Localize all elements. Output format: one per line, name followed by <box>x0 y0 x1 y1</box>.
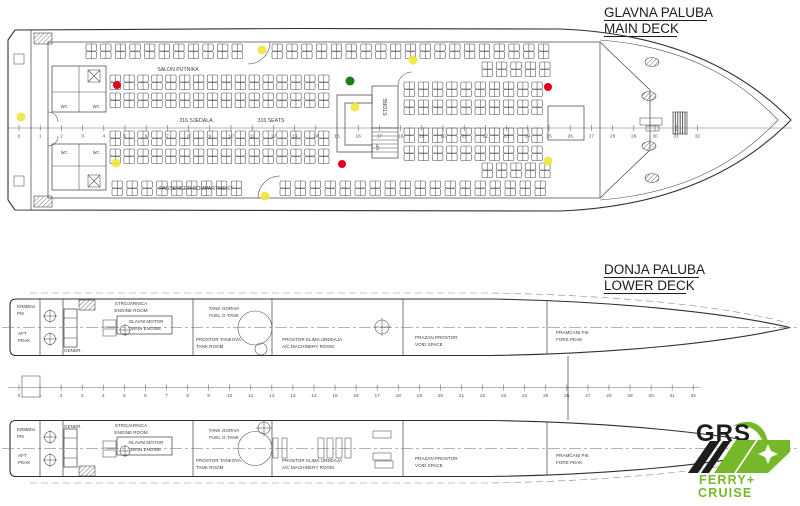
ac-room-label-en: A/C MACHINERY ROOM <box>282 344 334 349</box>
fuel-tank-label-hr: TANK GORIVA <box>209 428 241 433</box>
seat-unit <box>221 149 232 164</box>
bow-equipment <box>640 58 687 183</box>
seat-unit <box>496 163 507 178</box>
seat-unit <box>385 181 396 196</box>
seat-unit <box>277 131 288 146</box>
bollard <box>14 176 24 186</box>
seat-unit <box>305 75 316 90</box>
frame-number: 25 <box>546 134 552 140</box>
frame-number: 5 <box>123 393 126 399</box>
seat-unit <box>432 100 443 115</box>
seat-unit <box>340 181 351 196</box>
seat-unit <box>445 181 456 196</box>
seat-unit <box>221 75 232 90</box>
seat-unit <box>475 82 486 97</box>
frame-number: 26 <box>568 134 574 140</box>
frame-number: 18 <box>398 134 404 140</box>
frame-number: 30 <box>652 134 658 140</box>
void-space-label-en: VOID SPACE <box>415 342 443 347</box>
wc-block-top: WC WC <box>52 66 106 112</box>
store-label: STORE <box>383 98 389 116</box>
lower-deck-frame-scale: 0123456789101112131415161718192021222324… <box>18 385 697 400</box>
seat-unit <box>355 181 366 196</box>
seat-unit <box>505 181 516 196</box>
seat-unit <box>291 93 302 108</box>
seat-unit <box>193 149 204 164</box>
frame-number: 3 <box>81 134 84 140</box>
anchor-windlass <box>673 112 687 134</box>
lower-deck-bottom-half: KRMENI PIK AFT PEAK GENER. STROJARNICA E… <box>2 418 798 479</box>
seat-unit <box>404 82 415 97</box>
frame-number: 6 <box>144 393 147 399</box>
seat-unit <box>193 93 204 108</box>
frame-number: 0 <box>18 393 21 399</box>
seat-unit <box>503 146 514 161</box>
seat-unit <box>319 93 330 108</box>
frame-number: 11 <box>248 393 253 399</box>
seat-unit <box>461 146 472 161</box>
frame-number: 13 <box>290 393 296 399</box>
frame-number: 19 <box>419 134 425 140</box>
seat-unit <box>291 75 302 90</box>
seat-unit <box>482 163 493 178</box>
wc-block-bottom: WC WC <box>52 144 106 190</box>
seat-unit <box>115 44 126 59</box>
seat-unit <box>475 100 486 115</box>
yellow-marker <box>351 103 360 112</box>
seat-unit <box>404 128 415 143</box>
seat-unit <box>418 100 429 115</box>
seat-unit <box>277 93 288 108</box>
frame-number: 23 <box>501 393 507 399</box>
seat-unit <box>144 44 155 59</box>
seat-unit <box>272 44 283 59</box>
seat-unit <box>188 44 199 59</box>
stern-door-arcs <box>48 112 58 146</box>
generator <box>64 309 77 347</box>
frame-number: 29 <box>627 393 633 399</box>
seat-unit <box>249 149 260 164</box>
frame-number: 28 <box>610 134 616 140</box>
yellow-marker <box>409 56 418 65</box>
seat-unit <box>447 146 458 161</box>
seats-count-hr: 316 SJEDALA <box>179 118 213 124</box>
seat-unit <box>280 181 291 196</box>
seat-unit <box>166 93 177 108</box>
ac-room-label-en: A/C MACHINERY ROOM <box>282 465 334 470</box>
main-deck-title-hr: GLAVNA PALUBA <box>604 5 713 20</box>
seat-unit <box>305 149 316 164</box>
engine-room-stairs <box>79 466 95 476</box>
seat-unit <box>124 149 134 164</box>
seating-area <box>86 44 550 196</box>
frame-number: 1 <box>39 393 42 399</box>
seat-unit <box>207 149 218 164</box>
seat-unit <box>130 44 141 59</box>
main-deck-title-en: MAIN DECK <box>604 21 679 36</box>
seat-unit <box>525 62 536 77</box>
seat-unit <box>86 44 97 59</box>
engine-room-label-en: ENGINE ROOM <box>114 430 147 435</box>
seat-unit <box>193 75 204 90</box>
seat-unit <box>127 181 137 196</box>
fore-peak-label-en: FORE PEAK <box>556 460 583 465</box>
logo-line1: FERRY+ <box>699 473 755 487</box>
frame-number: 12 <box>269 393 275 399</box>
tank-room-label-hr: PROSTOR TANKOVA <box>196 337 242 342</box>
ship-deck-plans-svg: GLAVNA PALUBA MAIN DECK WC WC <box>0 0 800 506</box>
logo-line2: CRUISE <box>698 486 752 500</box>
frame-number: 17 <box>377 134 383 140</box>
seat-unit <box>464 44 475 59</box>
seat-unit <box>479 44 490 59</box>
main-deck-plan: GLAVNA PALUBA MAIN DECK WC WC <box>8 5 792 211</box>
ac-room-label-hr: PROSTOR KLIMA UREĐAJA <box>282 458 343 463</box>
frame-number: 14 <box>311 393 317 399</box>
seat-unit <box>174 44 185 59</box>
frame-number: 30 <box>648 393 654 399</box>
staircase <box>372 128 398 158</box>
seat-unit <box>235 131 246 146</box>
seat-unit <box>447 100 458 115</box>
seat-unit <box>461 82 472 97</box>
salon-label: SALON PUTNIKA <box>157 67 199 73</box>
door-arc-store <box>398 72 412 86</box>
engine-room-label-hr: STROJARNICA <box>115 423 148 428</box>
seat-unit <box>138 75 149 90</box>
fuel-tank-label-en: FUEL O.TANK <box>209 313 240 318</box>
seat-unit <box>302 44 313 59</box>
wc-label: WC <box>93 150 100 155</box>
engine-room-stairs <box>79 300 95 310</box>
void-space-label-hr: PRAZAN PROSTOR <box>415 456 458 461</box>
engine-room-equipment <box>43 429 172 476</box>
frame-number: 16 <box>353 393 359 399</box>
seat-unit <box>277 149 288 164</box>
seat-unit <box>221 93 232 108</box>
fuel-tank-label-en: FUEL O.TANK <box>209 435 240 440</box>
frame-number: 1 <box>39 134 42 140</box>
winch <box>646 126 659 131</box>
frame-number: 10 <box>227 393 233 399</box>
seat-unit <box>142 181 153 196</box>
seat-unit <box>415 181 426 196</box>
frame-number: 8 <box>186 393 189 399</box>
seat-unit <box>249 93 260 108</box>
main-deck-frame-scale: 0123456789101112131415161718192021222324… <box>18 125 701 140</box>
frame-number: 32 <box>691 393 697 399</box>
seat-unit <box>509 44 520 59</box>
seat-unit <box>420 44 431 59</box>
passenger-cabin-wall <box>48 42 600 198</box>
frame-number: 9 <box>207 393 210 399</box>
seat-unit <box>159 44 170 59</box>
generator-label: GENER. <box>64 424 82 429</box>
aft-peak-label-en: AFT <box>18 331 27 336</box>
seat-unit <box>217 44 228 59</box>
seat-unit <box>503 82 514 97</box>
seat-unit <box>376 44 387 59</box>
seat-unit <box>518 82 529 97</box>
frame-number: 27 <box>585 393 591 399</box>
seat-unit <box>331 44 342 59</box>
seat-unit <box>404 100 415 115</box>
winch <box>640 118 662 125</box>
engine-room-label-en: ENGINE ROOM <box>114 308 147 313</box>
red-marker <box>338 160 346 168</box>
seat-unit <box>518 100 529 115</box>
seat-unit <box>138 149 149 164</box>
seat-unit <box>404 146 415 161</box>
frame-number: 31 <box>669 393 675 399</box>
seat-unit <box>316 44 327 59</box>
bollard <box>14 54 24 64</box>
seat-unit <box>152 93 163 108</box>
seat-unit <box>461 100 472 115</box>
frame-number: 17 <box>375 393 381 399</box>
frame-number: 20 <box>438 393 444 399</box>
deck-plan-drawing: GLAVNA PALUBA MAIN DECK WC WC <box>0 0 800 506</box>
seat-unit <box>532 82 543 97</box>
seat-unit <box>152 131 163 146</box>
frame-number: 21 <box>462 134 468 140</box>
yellow-marker <box>544 157 553 166</box>
seat-unit <box>152 149 163 164</box>
seat-unit <box>138 93 149 108</box>
wc-label: WC <box>61 104 68 109</box>
aft-peak-label-en: AFT <box>18 453 27 458</box>
frame-number: 7 <box>165 393 168 399</box>
main-engine-label-en: MAIN ENGINE <box>131 326 161 331</box>
frame-number: 24 <box>522 393 528 399</box>
seat-unit <box>180 93 191 108</box>
seat-unit <box>180 149 191 164</box>
main-engine-label-hr: GLAVNI MOTOR <box>129 319 164 324</box>
seat-unit <box>489 100 500 115</box>
seat-unit <box>532 128 543 143</box>
frame-number: 15 <box>332 393 338 399</box>
seat-unit <box>447 128 458 143</box>
seat-unit <box>319 149 330 164</box>
seat-unit <box>460 181 471 196</box>
seat-unit <box>152 75 163 90</box>
seat-unit <box>390 44 401 59</box>
fuel-tank-label-hr: TANK GORIVA <box>209 306 241 311</box>
tank-room-label-hr: PROSTOR TANKOVA <box>196 458 242 463</box>
seat-unit <box>277 75 288 90</box>
seat-unit <box>450 44 461 59</box>
lower-deck-title-en: LOWER DECK <box>604 278 695 293</box>
fore-peak-label-hr: PRAMČANI PIK <box>556 329 590 335</box>
seat-unit <box>263 75 274 90</box>
seat-unit <box>447 82 458 97</box>
seat-unit <box>432 82 443 97</box>
seat-unit <box>310 181 321 196</box>
yellow-marker <box>261 192 270 201</box>
seat-unit <box>231 181 242 196</box>
seat-unit <box>430 181 441 196</box>
up-label: UP <box>375 144 380 150</box>
seat-unit <box>305 93 316 108</box>
seat-unit <box>207 75 218 90</box>
forward-vestibule-wall <box>600 42 650 198</box>
frame-number: 21 <box>459 393 465 399</box>
seat-unit <box>475 181 486 196</box>
fore-peak-label-en: FORE PEAK <box>556 337 583 342</box>
frame-number: 27 <box>589 134 595 140</box>
wc-label: WC <box>93 104 100 109</box>
main-deck-hull-inner-line <box>600 40 778 200</box>
seat-unit <box>503 100 514 115</box>
frame-number: 31 <box>674 134 680 140</box>
seat-unit <box>400 181 411 196</box>
seat-unit <box>235 93 246 108</box>
seat-unit <box>475 146 486 161</box>
rudder-post <box>22 376 40 397</box>
seat-unit <box>525 163 536 178</box>
seat-unit <box>166 149 177 164</box>
seat-unit <box>193 131 204 146</box>
seat-unit <box>232 44 243 59</box>
seat-unit <box>203 44 214 59</box>
frame-number: 26 <box>564 393 570 399</box>
seat-unit <box>110 93 121 108</box>
grs-ferry-cruise-logo: GRS FERRY+ CRUISE <box>688 420 790 500</box>
seat-unit <box>418 82 429 97</box>
seat-unit <box>540 62 551 77</box>
yellow-marker <box>17 113 26 122</box>
seat-unit <box>346 44 357 59</box>
aft-peak-label-hr: KRMENI <box>17 304 35 309</box>
seat-unit <box>520 181 531 196</box>
yellow-marker <box>112 159 121 168</box>
seat-unit <box>418 146 429 161</box>
seat-unit <box>535 181 546 196</box>
seat-unit <box>524 44 535 59</box>
seat-unit <box>532 100 543 115</box>
seat-unit <box>482 62 493 77</box>
seat-unit <box>101 44 112 59</box>
seat-unit <box>370 181 381 196</box>
void-space-label-hr: PRAZAN PROSTOR <box>415 335 458 340</box>
tank-room-label-en: TANK ROOM <box>196 465 224 470</box>
frame-number: 0 <box>18 134 21 140</box>
frame-number: 18 <box>396 393 402 399</box>
seat-unit <box>319 131 330 146</box>
seat-unit <box>124 93 134 108</box>
seat-unit <box>511 163 522 178</box>
seat-unit <box>518 146 529 161</box>
frame-number: 4 <box>102 393 105 399</box>
ac-room-label-hr: PROSTOR KLIMA UREĐAJA <box>282 337 343 342</box>
tank-room-equipment <box>238 420 272 466</box>
engine-room-label-hr: STROJARNICA <box>115 301 148 306</box>
seat-unit <box>494 44 505 59</box>
lower-deck-plan: DONJA PALUBA LOWER DECK <box>2 262 798 483</box>
seat-unit <box>490 181 501 196</box>
seat-unit <box>112 181 123 196</box>
seat-unit <box>532 146 543 161</box>
frame-number: 25 <box>543 393 549 399</box>
seat-unit <box>432 146 443 161</box>
seats-count-en: 316 SEATS <box>258 118 285 124</box>
frame-number: 3 <box>81 393 84 399</box>
seat-unit <box>489 146 500 161</box>
seat-unit <box>325 181 336 196</box>
seat-unit <box>166 75 177 90</box>
seat-unit <box>291 149 302 164</box>
green-marker <box>346 77 355 86</box>
yellow-marker <box>258 46 267 55</box>
void-space-label-en: VOID SPACE <box>415 463 443 468</box>
generator-label: GENER. <box>64 348 82 353</box>
seat-unit <box>110 131 121 146</box>
aft-peak-label-hr: KRMENI <box>17 427 35 432</box>
seat-unit <box>489 82 500 97</box>
main-engine-label-en: MAIN ENGINE <box>131 447 161 452</box>
seat-unit <box>489 128 500 143</box>
marker-dots-main-deck <box>17 46 553 201</box>
fore-peak-label-hr: PRAMČANI PIK <box>556 452 590 458</box>
red-marker <box>113 81 121 89</box>
frame-number: 15 <box>334 134 340 140</box>
seat-unit <box>180 75 191 90</box>
aft-peak-label-en: PEAK <box>18 460 31 465</box>
seat-unit <box>249 75 260 90</box>
frame-number: 29 <box>631 134 637 140</box>
deck-overhang-dashed <box>30 453 788 483</box>
main-engine-label-hr: GLAVNI MOTOR <box>129 440 164 445</box>
aft-peak-label-hr: PIK <box>17 434 25 439</box>
frame-number: 19 <box>417 393 423 399</box>
frame-number: 22 <box>480 393 486 399</box>
seat-unit <box>511 62 522 77</box>
generator <box>64 429 77 467</box>
tank-room-label-en: TANK ROOM <box>196 344 224 349</box>
lower-deck-top-half: KRMENI PIK AFT PEAK STROJARNICA ENGINE R… <box>2 296 798 358</box>
frame-number: 16 <box>356 134 362 140</box>
seat-unit <box>319 75 330 90</box>
stern-stairs <box>34 196 52 207</box>
aft-peak-label-hr: PIK <box>17 311 25 316</box>
forward-hatch <box>548 106 584 140</box>
frame-number: 2 <box>60 134 63 140</box>
lower-deck-title-hr: DONJA PALUBA <box>604 262 705 277</box>
seat-unit <box>207 93 218 108</box>
seat-unit <box>295 181 306 196</box>
seat-unit <box>496 62 507 77</box>
seat-unit <box>263 93 274 108</box>
seat-unit <box>235 149 246 164</box>
frame-number: 28 <box>606 393 612 399</box>
seat-unit <box>235 75 246 90</box>
red-marker <box>544 83 552 91</box>
seat-unit <box>538 44 549 59</box>
seat-unit <box>287 44 298 59</box>
frame-number: 2 <box>60 393 63 399</box>
frame-number: 32 <box>695 134 701 140</box>
aft-peak-label-en: PEAK <box>18 338 31 343</box>
frame-number: 4 <box>102 134 105 140</box>
seat-unit <box>124 75 134 90</box>
seat-unit <box>361 44 372 59</box>
seat-unit <box>435 44 446 59</box>
seat-unit <box>263 149 274 164</box>
wc-label: WC <box>61 150 68 155</box>
